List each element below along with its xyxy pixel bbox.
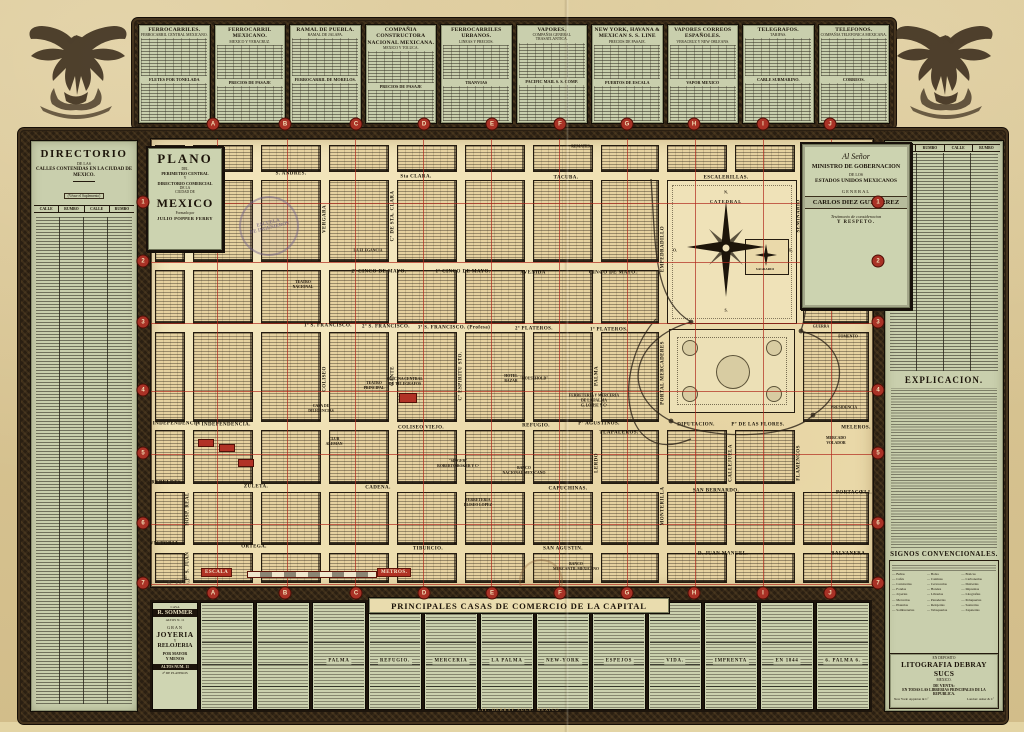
place-label: CLUB ALEMAN <box>326 437 343 447</box>
red-grid-line <box>151 262 873 263</box>
advert-name: R. SOMMER <box>153 609 197 617</box>
commerce-band: CASA R. SOMMER ALTOS N. 11 GRAN JOYERIA … <box>150 600 872 712</box>
place-label: MERCADO VOLADOR <box>826 436 846 446</box>
explicacion-text <box>891 388 997 548</box>
street-label: TIBURCIO. <box>413 547 443 552</box>
timetable-subtitle: RAMAL DE JALAPA. <box>308 33 343 37</box>
sommer-advert: CASA R. SOMMER ALTOS N. 11 GRAN JOYERIA … <box>152 602 198 710</box>
timetable-midheader: CABLE SUBMARINO. <box>757 77 800 82</box>
street-label: Sta CLARA. <box>400 175 431 180</box>
timetable-title: VAPORES CORREOS ESPAÑOLES. <box>669 27 738 40</box>
compass-n: N. <box>724 191 728 196</box>
advert-column: IMPRENTA <box>704 602 758 710</box>
street-label: HOSP. REAL <box>186 492 191 526</box>
advert-column: REFUGIO. <box>368 602 422 710</box>
col-header-rumbo: RUMBO <box>59 206 84 212</box>
dedication-line: Y RESPETO. <box>805 220 907 225</box>
sagrario-cross <box>753 242 779 268</box>
litografia-debray-highlight <box>399 393 417 403</box>
timetable-title: FERROCARRILES URBANOS. <box>442 27 511 40</box>
advert-column: NEW-YORK <box>536 602 590 710</box>
place-label: FERRETERIA Y MERCERIA DE LA PALMA G. LOH… <box>569 394 619 409</box>
street-label: 3ª S. FRANCISCO. (Profesa) <box>418 326 491 331</box>
col-header-calle: CALLE <box>85 206 110 212</box>
street-label: AVENIDA <box>520 271 546 276</box>
timetable-rows <box>594 86 660 121</box>
timetable-title: COMPAÑIA CONSTRUCTORA NACIONAL MEXICANA. <box>367 27 436 46</box>
timetable-title: FERROCARRIL MEXICANO. <box>216 27 285 40</box>
street-label: CAPUCHINAS. <box>549 487 588 492</box>
timetable-rows <box>821 83 887 121</box>
timetable-rows <box>745 38 811 76</box>
timetable-panel: VAPORES CORREOS ESPAÑOLES. VERACRUZ Y NE… <box>667 24 740 124</box>
timetable-rows <box>821 38 887 76</box>
map-title: PLANO <box>149 151 221 167</box>
place-label: BANCO NACIONAL MEXICANO <box>503 466 546 476</box>
red-grid-line <box>151 323 873 324</box>
street-directory-left: DIRECTORIO DE LAS CALLES CONTENIDAS EN L… <box>30 140 138 712</box>
dedication-cartouche: Al Señor MINISTRO DE GOBERNACION DE LOS … <box>800 142 912 310</box>
legend-item: Tabaquerías <box>927 608 962 613</box>
deposito-line: EN TODAS LAS LIBRERIAS PRINCIPALES DE LA… <box>890 688 998 696</box>
street-label: EMPEDRADILLO <box>661 226 666 272</box>
red-grid-line <box>355 139 356 587</box>
street-label: Pº DE LAS FLORES. <box>731 423 784 428</box>
advert-line: JOYERIA <box>156 630 193 639</box>
advert-column: LA PALMA <box>480 602 534 710</box>
timetable-midheader: PACIFIC MAIL S. S. COMP. <box>525 79 578 84</box>
street-label: PALMA <box>595 366 600 386</box>
dedication-line: ESTADOS UNIDOS MEXICANOS <box>805 178 907 184</box>
cathedral-label: CATEDRAL <box>710 199 742 205</box>
street-label: TLAPALEROS. <box>599 431 638 436</box>
directory-column-headers: CALLE RUMBO CALLE RUMBO <box>34 205 134 213</box>
red-grid-line <box>491 139 492 587</box>
compass-s: S. <box>724 309 727 314</box>
timetable-rows <box>443 45 509 80</box>
scale-metros-chip: METROS. <box>377 568 411 577</box>
scale-bar <box>247 571 377 578</box>
timetable-rows <box>292 83 358 121</box>
antique-map-page: FERROCARRILES. FERROCARRIL CENTRAL MEXIC… <box>0 0 1024 732</box>
timetable-rows <box>141 83 207 121</box>
red-building-highlight <box>198 439 214 447</box>
timetable-subtitle: VERACRUZ Y NEW ORLEANS. <box>676 40 729 44</box>
street-label: ESCALERILLAS. <box>703 176 748 181</box>
street-label: VERGARA <box>323 205 328 233</box>
explicacion-title: EXPLICACION. <box>885 375 1003 385</box>
advert-label: PALMA <box>326 658 351 665</box>
advert-label: MERCERIA <box>432 658 469 665</box>
place-label: REMATES. <box>571 145 590 150</box>
directory-header: DIRECTORIO DE LAS CALLES CONTENIDAS EN L… <box>31 141 137 202</box>
timetable-rows <box>670 86 736 121</box>
advert-label: LA PALMA <box>489 658 524 665</box>
place-label: TEATRO PRINCIPAL <box>364 381 385 391</box>
timetable-rows <box>217 86 283 121</box>
advert-label: REFUGIO. <box>378 658 412 665</box>
advert-column: ESPEJOS <box>592 602 646 710</box>
dedication-line: DE LOS <box>805 172 907 177</box>
advert-columns: PALMA REFUGIO. MERCERIA LA PALMA NEW-YOR… <box>200 602 870 710</box>
timetable-title: NEW YORK, HAVANA & MEXICAN S. S. LINE <box>593 27 662 40</box>
title-city: MEXICO <box>149 196 221 211</box>
timetable-panel: COMPAÑIA CONSTRUCTORA NACIONAL MEXICANA.… <box>365 24 438 124</box>
place-label: OFICINA CENTRAL DE TELEGRAFOS <box>387 377 423 387</box>
street-label: 1º CINCO DE MAYO. <box>436 270 491 275</box>
advert-label: EN 1844 <box>773 658 800 665</box>
street-label: MELEROS. <box>841 426 870 431</box>
street-label: 1ª S. FRANCISCO. <box>304 324 352 329</box>
agent-new-york: New York: Appleton & Cº <box>894 697 929 701</box>
signos-legend-box: BañosBolsaBoticasCafésCantinasCarbonería… <box>889 560 999 654</box>
legend-item: Zapaterías <box>961 608 996 613</box>
deposito-city: MEXICO. <box>890 678 998 682</box>
street-label: 1ª INDEPENDENCIA. <box>195 423 251 428</box>
street-label: TACUBA. <box>554 176 579 181</box>
street-label: MONTERILLA <box>661 487 666 526</box>
timetable-subtitle: MEXICO Y VERACRUZ. <box>229 40 270 44</box>
timetable-rows <box>670 45 736 80</box>
directory-note: (Véase el Suplemento) <box>64 193 105 199</box>
mexican-eagle-emblem-left <box>20 10 132 122</box>
title-cartouche: PLANO DEL PERIMETRO CENTRAL Y DIRECTORIO… <box>146 146 224 252</box>
street-label: CADENA. <box>365 486 390 491</box>
red-grid-line <box>559 139 560 587</box>
timetable-rows <box>594 45 660 80</box>
advert-column: EN 1844 <box>760 602 814 710</box>
compass-e: E. <box>789 249 792 254</box>
advert-column <box>256 602 310 710</box>
timetable-rows <box>217 45 283 80</box>
timetable-panel: FERROCARRIL MEXICANO. MEXICO Y VERACRUZ.… <box>214 24 287 124</box>
timetable-subtitle: LINEAS Y PRECIOS. <box>459 40 493 44</box>
red-grid-line <box>423 139 424 587</box>
red-grid-line <box>151 524 873 525</box>
red-grid-line <box>695 139 696 587</box>
street-label: COLISEO VIEJO. <box>398 426 444 431</box>
timetable-rows <box>443 86 509 121</box>
advert-column: 6. PALMA 6. <box>816 602 870 710</box>
red-grid-line <box>627 139 628 587</box>
timetable-panel: TELEGRAFOS. TARIFAS. CABLE SUBMARINO. <box>742 24 815 124</box>
street-label: ZULETA. <box>244 485 268 490</box>
timetable-panel: RAMAL DE PUEBLA. RAMAL DE JALAPA. FERROC… <box>289 24 362 124</box>
street-label: REFUGIO. <box>522 424 550 429</box>
street-label: 2º CINCO DE MAYO. <box>352 270 407 275</box>
street-label: ORTEGA. <box>241 545 267 550</box>
lithographer-imprint: LIT. DEBRAY SUCS. MEXICO. <box>478 707 562 712</box>
timetable-subtitle: FERROCARRIL CENTRAL MEXICANO. <box>141 33 208 37</box>
deposito-box: EN DEPOSITO LITOGRAFIA DEBRAY SUCS MEXIC… <box>889 653 999 709</box>
place-label: PRESIDENCIA <box>831 406 857 411</box>
place-label: "HOUSEHOLD" <box>520 377 549 382</box>
directory-title: DIRECTORIO <box>31 148 137 160</box>
advert-column: VIDA. <box>648 602 702 710</box>
col-header-rumbo: RUMBO <box>110 206 134 212</box>
col-header-rumbo: RUMBO <box>973 145 1000 151</box>
timetable-panel: VAPORES. COMPAÑIA GENERAL TRASATLANTICA.… <box>516 24 589 124</box>
street-label: DIPUTACION. <box>677 423 715 428</box>
street-label: Cº DE STA. CLARA <box>391 191 396 242</box>
street-label: REBELDES. <box>151 481 183 486</box>
street-label: D. JUAN MANUEL. <box>698 552 748 557</box>
street-label: BALVANERA. <box>831 552 867 557</box>
red-grid-line <box>151 454 873 455</box>
timetable-rows <box>519 85 585 121</box>
compass-o: O. <box>673 249 677 254</box>
legend-items: BañosBolsaBoticasCafésCantinasCarbonería… <box>892 572 996 613</box>
advert-line: ALTOS N. 11 <box>166 618 185 622</box>
street-label: FLAMENCOS <box>797 445 802 481</box>
place-label: FOMENTO <box>838 335 858 340</box>
dedication-line: GENERAL <box>805 189 907 194</box>
commerce-banner: PRINCIPALES CASAS DE COMERCIO DE LA CAPI… <box>368 597 670 614</box>
advert-label: ESPEJOS <box>604 658 634 665</box>
advert-line: RELOJERIA <box>157 643 192 649</box>
street-label: SAN BERNARDO. <box>693 489 739 494</box>
timetable-rows <box>368 51 434 82</box>
timetable-midheader: CORREOS. <box>843 77 865 82</box>
advert-label: NEW-YORK <box>544 658 582 665</box>
title-line: Formado por <box>149 211 221 215</box>
agent-london: London: Asher & Cº <box>967 697 994 701</box>
red-building-highlight <box>219 444 235 452</box>
dedicatee-name: CARLOS DIEZ GUTIERREZ <box>805 196 907 209</box>
signos-title: SIGNOS CONVENCIONALES. <box>885 550 1003 558</box>
dedication-line: Testimonio de consideracion <box>805 214 907 219</box>
street-label: 1ª PLATEROS. <box>590 328 628 333</box>
timetable-panel: NEW YORK, HAVANA & MEXICAN S. S. LINE PR… <box>591 24 664 124</box>
city-map: CATEDRAL N. S. E. O. SAGRARIO <box>150 138 874 588</box>
legend-item: Sombrererías <box>892 608 927 613</box>
timetable-band: FERROCARRILES. FERROCARRIL CENTRAL MEXIC… <box>138 24 890 124</box>
street-label: 2ª S. FRANCISCO. <box>362 325 410 330</box>
place-label: GUERRA <box>813 325 829 330</box>
place-label: HOTEL BAZAR <box>504 374 518 384</box>
scale-escala-chip: ESCALA <box>201 568 232 577</box>
place-label: "SINGER" ROBERTO BOKER Y Cª <box>437 459 479 469</box>
street-label: COLISEO <box>323 366 328 392</box>
street-label: S. ANDRES. <box>276 172 307 177</box>
timetable-panel: TELEFONOS. COMPAÑIA TELEFONICA MEXICANA.… <box>818 24 891 124</box>
timetable-subtitle: COMPAÑIA GENERAL TRASATLANTICA. <box>518 33 587 41</box>
timetable-panel: FERROCARRILES URBANOS. LINEAS Y PRECIOS.… <box>440 24 513 124</box>
advert-label <box>225 660 229 662</box>
timetable-rows <box>368 90 434 121</box>
timetable-rows <box>141 38 207 76</box>
timetable-subtitle: TARIFAS. <box>770 33 786 37</box>
advert-label: VIDA. <box>664 658 685 665</box>
street-label: SAN AGUSTIN. <box>543 547 583 552</box>
timetable-midheader: FLETES POR TONELADA <box>149 77 200 82</box>
advert-label: IMPRENTA <box>713 658 749 665</box>
timetable-midheader: PUERTOS DE ESCALA <box>605 80 649 85</box>
col-header-rumbo: RUMBO <box>916 145 944 151</box>
advert-label <box>281 660 285 662</box>
sagrario-label: SAGRARIO <box>756 267 774 271</box>
advert-column: PALMA <box>312 602 366 710</box>
legend-intro-text <box>892 563 996 571</box>
place-label: CASA DE DILIGENCIAS <box>308 404 334 414</box>
place-label: LA ELEGANCIA <box>353 249 382 254</box>
timetable-midheader: FERROCARRIL DE MORELOS. <box>295 77 356 82</box>
street-label: CINCO DE MAYO. <box>589 271 637 276</box>
red-grid-line <box>763 139 764 587</box>
street-label: LERDO <box>595 453 600 473</box>
mexican-eagle-emblem-right <box>890 10 1002 122</box>
advert-label: 6. PALMA 6. <box>823 658 862 665</box>
street-label: Pº AGUSTINOS. <box>578 422 620 427</box>
directory-subtitle: CALLES CONTENIDAS EN LA CIUDAD DE MEXICO… <box>31 167 137 179</box>
timetable-midheader: VAPOR MEXICO <box>686 80 719 85</box>
timetable-subtitle: MEXICO Y TOLUCA. <box>383 46 419 50</box>
dedication-line: Al Señor <box>805 152 907 161</box>
street-label: Pª S. JUAN <box>186 552 191 580</box>
col-header-calle: CALLE <box>945 145 973 151</box>
advert-line: ALTOS NUM. 11 <box>153 664 197 670</box>
street-label: Pª INDEPENDENCIA <box>150 422 200 427</box>
red-grid-line <box>151 391 873 392</box>
timetable-rows <box>292 38 358 76</box>
red-building-highlight <box>238 459 254 467</box>
advert-line: 2ª DE PLATEROS <box>162 671 188 675</box>
directory-entries <box>36 217 132 704</box>
deposito-agents: New York: Appleton & Cº London: Asher & … <box>890 696 998 701</box>
title-line: CIUDAD DE <box>149 190 221 194</box>
timetable-midheader: TRANVIAS <box>465 80 487 85</box>
street-label: PORTAL MERCADERES <box>661 341 666 405</box>
street-label: VICTORIA. <box>150 542 180 547</box>
street-label: Cº ESPIRITU STO. <box>459 352 464 401</box>
author-name: JULIO POPPER FERRY <box>149 216 221 221</box>
timetable-rows <box>745 83 811 121</box>
timetable-subtitle: COMPAÑIA TELEFONICA MEXICANA. <box>821 33 887 37</box>
timetable-subtitle: PRECIOS DE PASAJE. <box>609 40 646 44</box>
directory-de-las: DE LAS <box>31 161 137 166</box>
lithographer-name: LITOGRAFIA DEBRAY SUCS <box>890 660 998 678</box>
col-header-calle: CALLE <box>34 206 59 212</box>
dedication-line: MINISTRO DE GOBERNACION <box>805 164 907 171</box>
timetable-midheader: PRECIOS DE PASAJE <box>229 80 271 85</box>
divider <box>73 181 95 182</box>
advert-column <box>200 602 254 710</box>
timetable-rows <box>519 43 585 79</box>
place-label: TEATRO NACIONAL <box>293 280 314 290</box>
street-label: CALLEJUELA <box>729 444 734 482</box>
street-label: PORTACŒLI. <box>836 491 872 496</box>
timetable-panel: FERROCARRILES. FERROCARRIL CENTRAL MEXIC… <box>138 24 211 124</box>
advert-line: Y MENOS <box>166 656 184 661</box>
place-label: FERRETERIA ELISEO LOPEZ <box>464 498 492 508</box>
timetable-midheader: PRECIOS DE PASAJE <box>380 84 422 89</box>
red-grid-line <box>151 584 873 585</box>
street-label: 2ª PLATEROS. <box>515 327 553 332</box>
advert-column: MERCERIA <box>424 602 478 710</box>
pencil-annotation: A. 1903 <box>167 578 191 586</box>
